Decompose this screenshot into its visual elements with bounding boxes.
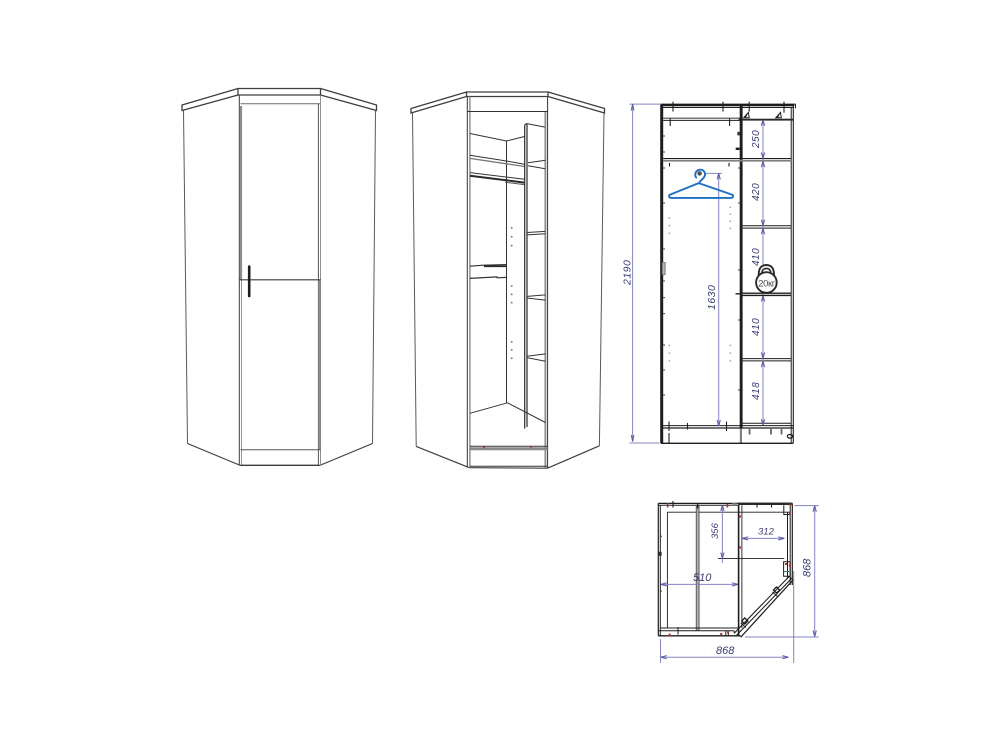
svg-text:510: 510 bbox=[693, 572, 712, 584]
svg-text:868: 868 bbox=[716, 645, 735, 657]
svg-text:2190: 2190 bbox=[622, 260, 634, 286]
svg-text:312: 312 bbox=[758, 527, 775, 538]
svg-text:868: 868 bbox=[802, 558, 814, 577]
svg-text:418: 418 bbox=[751, 382, 762, 400]
svg-text:410: 410 bbox=[751, 318, 762, 336]
svg-text:410: 410 bbox=[751, 248, 762, 266]
svg-text:250: 250 bbox=[751, 130, 762, 149]
svg-text:1630: 1630 bbox=[706, 285, 718, 310]
svg-text:356: 356 bbox=[710, 522, 721, 539]
svg-text:20кг: 20кг bbox=[758, 278, 776, 289]
svg-text:420: 420 bbox=[751, 183, 762, 201]
